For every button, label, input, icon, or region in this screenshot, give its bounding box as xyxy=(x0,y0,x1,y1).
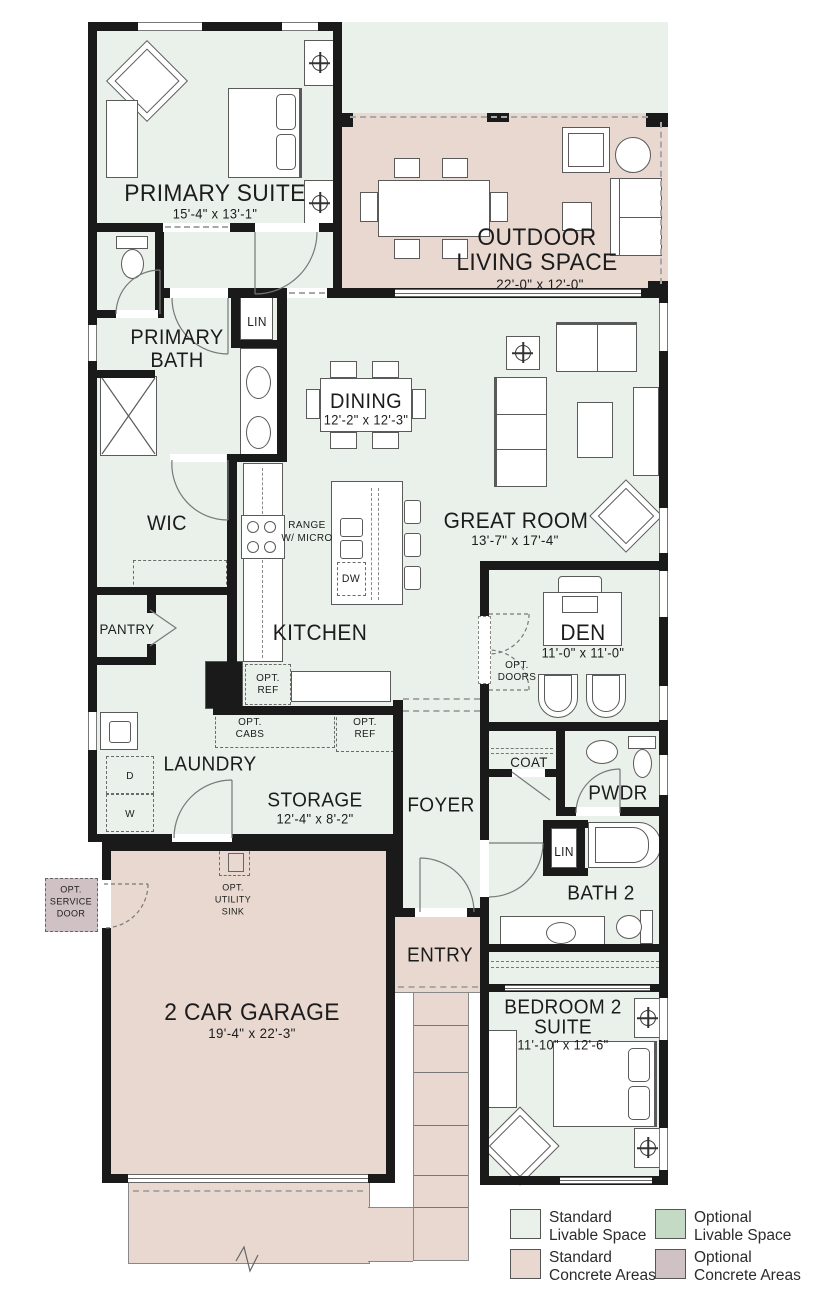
door-arc xyxy=(172,460,228,520)
label-linen-2: LIN xyxy=(554,845,574,859)
label-coat: COAT xyxy=(510,754,547,770)
legend-label: Standard xyxy=(549,1249,612,1267)
label-outdoor-line1: OUTDOOR xyxy=(477,224,596,252)
door-arc xyxy=(489,843,543,897)
label-storage: STORAGE xyxy=(267,790,362,813)
legend-label: Standard xyxy=(549,1209,612,1227)
label-dining-dims: 12'-2" x 12'-3" xyxy=(324,413,409,428)
label-linen-1: LIN xyxy=(247,315,267,329)
label-opt-doors-line1: OPT. xyxy=(505,659,529,671)
label-washer: W xyxy=(125,808,135,820)
label-range-line1: RANGE xyxy=(288,519,325,531)
legend-swatch-optional-livable xyxy=(655,1209,686,1239)
label-den: DEN xyxy=(560,620,605,646)
opt-service-door-arc xyxy=(104,884,148,928)
label-opt-utility-sink-line3: SINK xyxy=(222,907,245,918)
label-storage-dims: 12'-4" x 8'-2" xyxy=(276,812,353,827)
label-bath-2: BATH 2 xyxy=(567,883,634,906)
label-dryer: D xyxy=(126,770,134,782)
shower-x-icon xyxy=(102,378,155,454)
door-arc xyxy=(116,270,160,314)
floor-plan: PRIMARY SUITE 15'-4" x 13'-1" OUTDOOR LI… xyxy=(0,0,816,1298)
label-opt-service-door-line3: DOOR xyxy=(57,909,86,920)
legend-swatch-optional-concrete xyxy=(655,1249,686,1279)
label-bedroom-2-line2: SUITE xyxy=(534,1017,592,1040)
label-garage: 2 CAR GARAGE xyxy=(164,999,340,1027)
legend-swatch-standard-concrete xyxy=(510,1249,541,1279)
label-opt-cabs-line1: OPT. xyxy=(238,716,262,728)
legend-label: Livable Space xyxy=(549,1227,646,1245)
opt-door-arc xyxy=(489,614,529,654)
label-great-room: GREAT ROOM xyxy=(444,508,589,534)
label-opt-ref-line1: OPT. xyxy=(256,672,280,684)
label-dining: DINING xyxy=(330,390,402,414)
label-wic: WIC xyxy=(147,512,187,536)
label-outdoor-line2: LIVING SPACE xyxy=(456,249,617,277)
label-outdoor-dims: 22'-0" x 12'-0" xyxy=(496,276,584,292)
label-primary-suite: PRIMARY SUITE xyxy=(124,180,305,208)
label-opt-service-door-line2: SERVICE xyxy=(50,897,92,908)
legend-label: Optional xyxy=(694,1209,752,1227)
label-kitchen: KITCHEN xyxy=(273,620,367,646)
label-garage-dims: 19'-4" x 22'-3" xyxy=(208,1025,296,1041)
coat-door-line xyxy=(512,772,550,800)
label-opt-ref2-line1: OPT. xyxy=(353,716,377,728)
door-arc xyxy=(420,858,474,912)
label-opt-ref2-line2: REF xyxy=(354,728,375,740)
door-swings-layer xyxy=(0,0,816,1298)
label-den-dims: 11'-0" x 11'-0" xyxy=(542,646,625,661)
legend-label: Livable Space xyxy=(694,1227,791,1245)
label-pantry: PANTRY xyxy=(99,621,154,637)
label-foyer: FOYER xyxy=(407,795,474,818)
label-opt-doors-line2: DOORS xyxy=(498,671,536,683)
break-line-icon xyxy=(236,1247,258,1271)
legend-swatch-standard-livable xyxy=(510,1209,541,1239)
label-bedroom-2-dims: 11'-10" x 12'-6" xyxy=(517,1038,608,1053)
label-powder: PWDR xyxy=(588,783,648,806)
legend-label: Concrete Areas xyxy=(549,1267,656,1285)
label-great-room-dims: 13'-7" x 17'-4" xyxy=(471,532,559,548)
legend-label: Optional xyxy=(694,1249,752,1267)
label-dishwasher: DW xyxy=(342,573,360,585)
label-laundry: LAUNDRY xyxy=(163,754,256,777)
label-range-line2: W/ MICRO xyxy=(281,532,332,544)
label-opt-utility-sink-line2: UTILITY xyxy=(215,895,251,906)
label-opt-utility-sink-line1: OPT. xyxy=(222,883,244,894)
label-primary-suite-dims: 15'-4" x 13'-1" xyxy=(173,207,258,222)
door-arc xyxy=(174,780,232,838)
label-primary-bath-line2: BATH xyxy=(150,349,203,373)
label-opt-cabs-line2: CABS xyxy=(236,728,265,740)
label-entry: ENTRY xyxy=(407,945,473,968)
legend-label: Concrete Areas xyxy=(694,1267,801,1285)
door-arc xyxy=(255,232,317,294)
label-opt-ref-line2: REF xyxy=(257,684,278,696)
label-opt-service-door-line1: OPT. xyxy=(60,885,82,896)
label-primary-bath-line1: PRIMARY xyxy=(130,326,223,350)
